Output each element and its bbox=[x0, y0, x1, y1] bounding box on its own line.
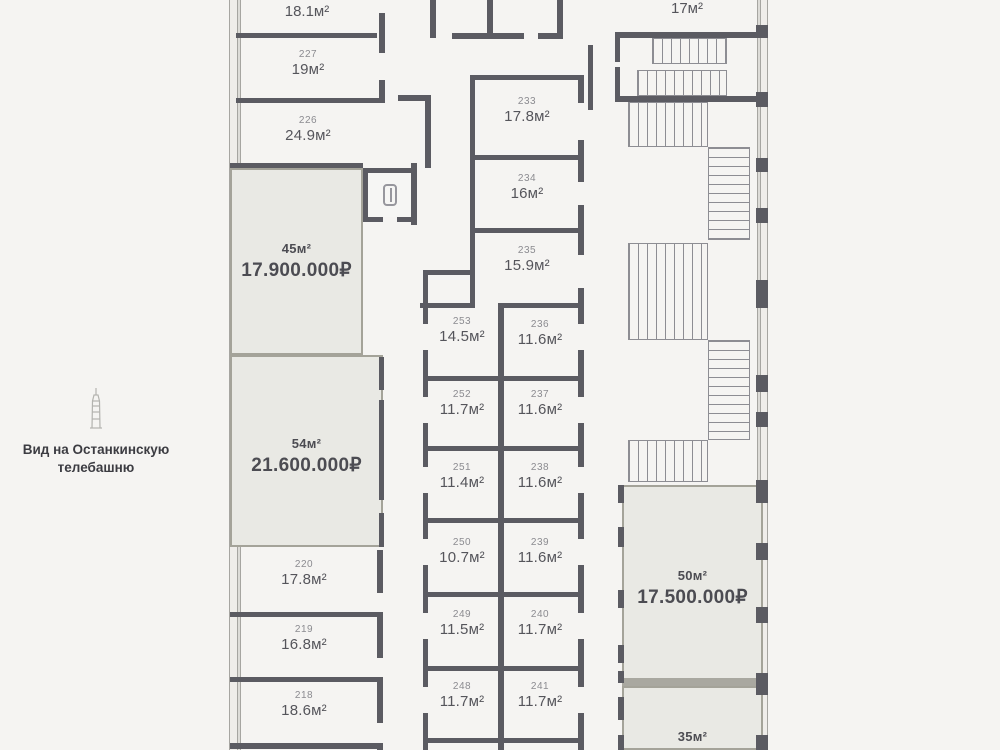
wall bbox=[230, 163, 363, 168]
room-area: 11.7м² bbox=[440, 693, 485, 711]
stairs-flight bbox=[628, 243, 708, 340]
wall bbox=[377, 677, 383, 723]
wall bbox=[578, 671, 584, 687]
room-number: 251 bbox=[440, 461, 485, 474]
wall bbox=[578, 350, 584, 381]
room-239: 239 11.6м² bbox=[518, 536, 563, 567]
view-note: Вид на Останкинскую телебашню bbox=[18, 388, 174, 477]
unit-54[interactable]: 54м² 21.600.000₽ bbox=[230, 355, 383, 547]
room-area: 16м² bbox=[511, 185, 544, 203]
room-area: 11.6м² bbox=[518, 401, 563, 419]
room-area: 16.8м² bbox=[281, 636, 327, 654]
unit-area: 50м² bbox=[678, 568, 708, 583]
room-number: 252 bbox=[440, 388, 485, 401]
stairs-flight bbox=[708, 147, 750, 240]
wall bbox=[423, 743, 428, 750]
wall bbox=[423, 381, 428, 397]
wall bbox=[379, 13, 385, 53]
view-note-line1: Вид на Останкинскую bbox=[18, 441, 174, 459]
room-area: 11.7м² bbox=[518, 621, 563, 639]
wall bbox=[425, 738, 583, 743]
room-number: 248 bbox=[440, 680, 485, 693]
room-number: 253 bbox=[439, 315, 485, 328]
wall bbox=[230, 677, 377, 682]
unit-50[interactable]: 50м² 17.500.000₽ bbox=[622, 485, 763, 680]
wall-pier bbox=[756, 607, 768, 623]
floor-plan: 45м² 17.900.000₽ 54м² 21.600.000₽ 50м² 1… bbox=[0, 0, 1000, 750]
room-number: 250 bbox=[439, 536, 485, 549]
wall bbox=[377, 612, 383, 658]
room-area: 17.8м² bbox=[281, 571, 327, 589]
wall-pier bbox=[756, 280, 768, 308]
wall-pier bbox=[756, 412, 768, 427]
wall bbox=[618, 735, 624, 750]
wall bbox=[411, 163, 417, 225]
stairs-flight bbox=[652, 38, 727, 64]
wall bbox=[618, 645, 624, 663]
wall bbox=[230, 612, 377, 617]
wall bbox=[578, 308, 584, 324]
wall-pier bbox=[756, 735, 768, 750]
wall bbox=[578, 381, 584, 397]
view-note-line2: телебашню bbox=[18, 459, 174, 477]
room-area: 15.9м² bbox=[504, 257, 550, 275]
wall bbox=[578, 493, 584, 523]
wall bbox=[423, 423, 428, 451]
room-227: 227 19м² bbox=[292, 48, 325, 79]
wall bbox=[487, 0, 493, 36]
room-241: 241 11.7м² bbox=[518, 680, 563, 711]
wall bbox=[379, 357, 384, 390]
elevator-shaft bbox=[363, 168, 417, 222]
room-number: 238 bbox=[518, 461, 563, 474]
unit-35[interactable]: 35м² bbox=[622, 686, 763, 750]
wall bbox=[578, 639, 584, 671]
wall bbox=[236, 98, 385, 103]
room-236: 236 11.6м² bbox=[518, 318, 563, 349]
wall bbox=[425, 376, 583, 381]
unit-area: 35м² bbox=[678, 729, 708, 744]
room-number: 220 bbox=[281, 558, 327, 571]
wall bbox=[230, 743, 383, 749]
room-252: 252 11.7м² bbox=[440, 388, 485, 419]
room-area: 11.6м² bbox=[518, 474, 563, 492]
wall bbox=[423, 523, 428, 539]
wall bbox=[578, 160, 584, 182]
room-253: 253 14.5м² bbox=[439, 315, 485, 346]
elevator-icon bbox=[383, 184, 397, 206]
unit-45[interactable]: 45м² 17.900.000₽ bbox=[230, 168, 363, 355]
room-226: 226 24.9м² bbox=[285, 114, 331, 145]
wall bbox=[578, 205, 584, 230]
wall bbox=[425, 666, 583, 671]
wall bbox=[236, 33, 377, 38]
room-number: 235 bbox=[504, 244, 550, 257]
room-area: 11.5м² bbox=[440, 621, 485, 639]
wall bbox=[423, 451, 428, 467]
room-number: 227 bbox=[292, 48, 325, 61]
wall bbox=[578, 597, 584, 613]
room-area: 24.9м² bbox=[285, 127, 331, 145]
wall bbox=[377, 743, 383, 750]
wall bbox=[470, 155, 583, 160]
room-area: 14.5м² bbox=[439, 328, 485, 346]
wall bbox=[423, 639, 428, 671]
room-233: 233 17.8м² bbox=[504, 95, 550, 126]
wall bbox=[425, 95, 431, 168]
stairs-flight bbox=[628, 102, 708, 147]
room-250: 250 10.7м² bbox=[439, 536, 485, 567]
room-number: 236 bbox=[518, 318, 563, 331]
room-number: 219 bbox=[281, 623, 327, 636]
wall bbox=[618, 671, 624, 683]
room-number: 218 bbox=[281, 689, 327, 702]
wall bbox=[578, 713, 584, 743]
wall bbox=[379, 400, 384, 500]
wall-pier bbox=[756, 92, 768, 107]
stairs-flight bbox=[628, 440, 708, 482]
area-label-18-1: 18.1м² bbox=[285, 3, 330, 20]
wall bbox=[615, 67, 620, 100]
stairs-flight bbox=[637, 70, 727, 96]
room-number: 237 bbox=[518, 388, 563, 401]
wall bbox=[618, 485, 624, 503]
room-area: 11.6м² bbox=[518, 331, 563, 349]
wall bbox=[618, 697, 624, 720]
room-219: 219 16.8м² bbox=[281, 623, 327, 654]
room-237: 237 11.6м² bbox=[518, 388, 563, 419]
room-number: 226 bbox=[285, 114, 331, 127]
unit-area: 54м² bbox=[292, 436, 322, 451]
room-238: 238 11.6м² bbox=[518, 461, 563, 492]
wall-pier bbox=[756, 375, 768, 392]
unit-price: 17.900.000₽ bbox=[241, 259, 351, 282]
wall-pier bbox=[756, 543, 768, 560]
wall-pier bbox=[756, 208, 768, 223]
unit-price: 17.500.000₽ bbox=[637, 586, 747, 609]
wall bbox=[470, 75, 475, 308]
room-area: 17.8м² bbox=[504, 108, 550, 126]
stairs-flight bbox=[708, 340, 750, 440]
wall bbox=[470, 228, 583, 233]
wall bbox=[423, 597, 428, 613]
wall-pier bbox=[756, 25, 768, 38]
wall bbox=[470, 75, 583, 80]
wall bbox=[379, 80, 385, 98]
room-248: 248 11.7м² bbox=[440, 680, 485, 711]
wall bbox=[423, 713, 428, 743]
wall-pier bbox=[756, 480, 768, 503]
area-label-17: 17м² bbox=[671, 0, 703, 17]
wall bbox=[425, 518, 583, 523]
unit-area: 45м² bbox=[282, 241, 312, 256]
room-area: 11.7м² bbox=[518, 693, 563, 711]
wall bbox=[578, 140, 584, 160]
wall bbox=[622, 678, 763, 686]
room-234: 234 16м² bbox=[511, 172, 544, 203]
wall-pier bbox=[756, 158, 768, 172]
wall bbox=[379, 513, 384, 547]
wall bbox=[498, 308, 504, 750]
room-240: 240 11.7м² bbox=[518, 608, 563, 639]
ostankino-tower-icon bbox=[83, 388, 109, 430]
room-number: 240 bbox=[518, 608, 563, 621]
wall bbox=[423, 493, 428, 523]
room-220: 220 17.8м² bbox=[281, 558, 327, 589]
wall bbox=[423, 671, 428, 687]
wall bbox=[578, 423, 584, 451]
room-area: 11.7м² bbox=[440, 401, 485, 419]
room-area: 18.6м² bbox=[281, 702, 327, 720]
room-249: 249 11.5м² bbox=[440, 608, 485, 639]
room-218: 218 18.6м² bbox=[281, 689, 327, 720]
wall bbox=[578, 565, 584, 597]
wall bbox=[588, 45, 593, 110]
wall bbox=[618, 590, 624, 608]
room-number: 234 bbox=[511, 172, 544, 185]
wall bbox=[425, 592, 583, 597]
wall bbox=[578, 743, 584, 750]
wall bbox=[423, 308, 428, 324]
room-area: 11.4м² bbox=[440, 474, 485, 492]
elevator-door bbox=[383, 217, 397, 222]
wall bbox=[423, 350, 428, 381]
wall bbox=[578, 75, 584, 103]
room-251: 251 11.4м² bbox=[440, 461, 485, 492]
room-number: 233 bbox=[504, 95, 550, 108]
room-area: 10.7м² bbox=[439, 549, 485, 567]
wall-pier bbox=[756, 673, 768, 695]
room-number: 239 bbox=[518, 536, 563, 549]
wall bbox=[615, 38, 620, 62]
wall bbox=[498, 303, 584, 308]
room-number: 241 bbox=[518, 680, 563, 693]
wall bbox=[423, 565, 428, 597]
wall bbox=[425, 270, 471, 275]
wall bbox=[377, 550, 383, 593]
room-235: 235 15.9м² bbox=[504, 244, 550, 275]
wall bbox=[618, 527, 624, 547]
room-area: 11.6м² bbox=[518, 549, 563, 567]
wall bbox=[578, 523, 584, 539]
room-area: 19м² bbox=[292, 61, 325, 79]
unit-price: 21.600.000₽ bbox=[251, 454, 361, 477]
wall bbox=[578, 451, 584, 467]
wall bbox=[578, 230, 584, 255]
room-number: 249 bbox=[440, 608, 485, 621]
wall bbox=[430, 0, 436, 38]
wall bbox=[425, 446, 583, 451]
wall bbox=[557, 0, 563, 39]
